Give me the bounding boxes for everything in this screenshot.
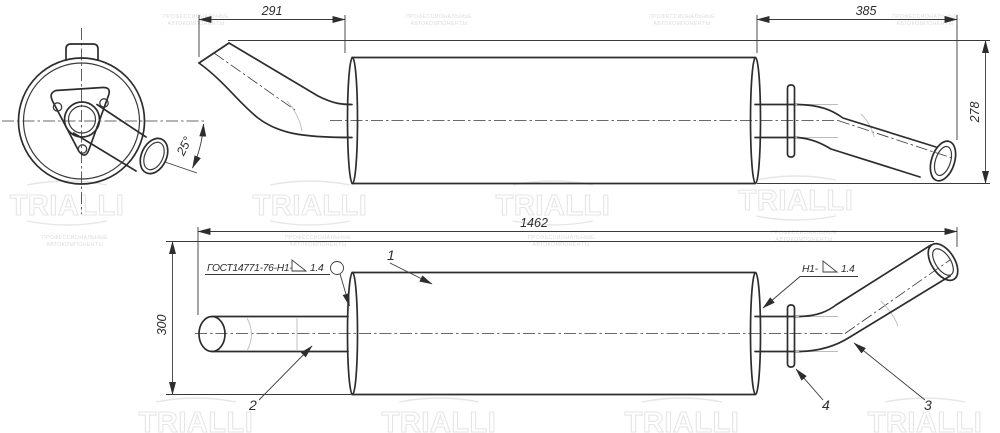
weld-size-text: 1.4 <box>841 264 855 275</box>
watermark-logo: TRIALLI <box>139 398 254 433</box>
svg-text:TRIALLI: TRIALLI <box>10 190 125 222</box>
part-label-muffler-body: 1 <box>387 247 395 263</box>
top-view-inlet-centerline <box>214 53 295 110</box>
part-label-bracket: 4 <box>822 397 830 413</box>
watermark-logo: TRIALLI ПРОФЕССИОНАЛЬНЫЕ АВТОКОМПОНЕНТЫ <box>10 181 125 248</box>
part-label-4: 4 <box>796 369 830 413</box>
dim-278-label: 278 <box>968 102 982 124</box>
svg-text:ПРОФЕССИОНАЛЬНЫЕ: ПРОФЕССИОНАЛЬНЫЕ <box>649 14 715 20</box>
weld-standard-text: ГОСТ14771-76-Н1- <box>207 263 293 274</box>
inlet-pipe-collar-outer <box>65 102 100 137</box>
weld-leader-circle <box>331 262 344 275</box>
dim-1462-label: 1462 <box>520 216 548 230</box>
svg-text:TRIALLI: TRIALLI <box>496 190 611 222</box>
part-label-inlet-pipe: 2 <box>248 397 257 413</box>
svg-text:ПРОФЕССИОНАЛЬНЫЕ: ПРОФЕССИОНАЛЬНЫЕ <box>528 235 594 241</box>
part-label-2: 2 <box>248 346 312 413</box>
watermark-logo: TRIALLI <box>382 398 497 433</box>
watermark-layer: ПРОФЕССИОНАЛЬНЫЕ АВТОКОМПОНЕНТЫ ПРОФЕССИ… <box>10 14 983 433</box>
inlet-pipe-end-inner <box>140 139 169 173</box>
svg-text:ПРОФЕССИОНАЛЬНЫЕ: ПРОФЕССИОНАЛЬНЫЕ <box>42 235 108 241</box>
watermark-logo: TRIALLI <box>625 398 740 433</box>
dim-385-label: 385 <box>856 4 877 18</box>
part-label-outlet-pipe: 3 <box>924 397 932 413</box>
svg-text:АВТОКОМПОНЕНТЫ: АВТОКОМПОНЕНТЫ <box>290 242 347 248</box>
watermark-logo: TRIALLI ПРОФЕССИОНАЛЬНЫЕ АВТОКОМПОНЕНТЫ <box>253 181 368 248</box>
svg-text:TRIALLI: TRIALLI <box>253 190 368 222</box>
svg-text:АВТОКОМПОНЕНТЫ: АВТОКОМПОНЕНТЫ <box>47 242 104 248</box>
svg-text:АВТОКОМПОНЕНТЫ: АВТОКОМПОНЕНТЫ <box>533 242 590 248</box>
flange-bolt-hole <box>78 145 86 153</box>
inlet-pipe-open-end <box>199 317 225 352</box>
watermark-logo: TRIALLI ПРОФЕССИОНАЛЬНЫЕ АВТОКОМПОНЕНТЫ <box>739 176 854 243</box>
muffler-body-top-view <box>348 58 761 184</box>
angle-25-label: 25° <box>173 135 195 159</box>
outlet-tip-outer <box>922 239 964 286</box>
svg-text:АВТОКОМПОНЕНТЫ: АВТОКОМПОНЕНТЫ <box>411 21 468 27</box>
fillet-weld-symbol <box>823 261 837 272</box>
outlet-tip-inner <box>931 144 955 177</box>
watermark-tagline-line2: АВТОКОМПОНЕНТЫ <box>168 21 225 27</box>
outlet-pipe-top-view <box>755 105 960 185</box>
inlet-pipe-collar-inner <box>69 106 96 133</box>
svg-text:TRIALLI: TRIALLI <box>382 407 497 433</box>
svg-text:ПРОФЕССИОНАЛЬНЫЕ: ПРОФЕССИОНАЛЬНЫЕ <box>285 235 351 241</box>
muffler-drawing-svg: ПРОФЕССИОНАЛЬНЫЕ АВТОКОМПОНЕНТЫ ПРОФЕССИ… <box>0 0 1000 433</box>
svg-text:TRIALLI: TRIALLI <box>139 407 254 433</box>
svg-text:АВТОКОМПОНЕНТЫ: АВТОКОМПОНЕНТЫ <box>776 237 833 243</box>
dim-angle-25: 25° <box>165 124 204 173</box>
fillet-weld-symbol <box>292 260 306 271</box>
dim-291-label: 291 <box>261 4 283 18</box>
part-label-1: 1 <box>387 247 432 284</box>
weld-callout-left: ГОСТ14771-76-Н1- 1.4 <box>205 260 350 306</box>
hanger-bracket-bottom-view <box>788 305 795 367</box>
outlet-tip-inner <box>929 245 958 278</box>
inlet-pipe-lower-edge <box>74 133 137 171</box>
side-view-top: 291 385 278 <box>199 4 990 184</box>
inlet-pipe-bottom-view <box>199 317 348 352</box>
watermark-logo: TRIALLI ПРОФЕССИОНАЛЬНЫЕ АВТОКОМПОНЕНТЫ <box>496 181 611 248</box>
svg-text:ПРОФЕССИОНАЛЬНЫЕ: ПРОФЕССИОНАЛЬНЫЕ <box>406 14 472 20</box>
svg-text:АВТОКОМПОНЕНТЫ: АВТОКОМПОНЕНТЫ <box>897 21 954 27</box>
technical-drawing-page: ПРОФЕССИОНАЛЬНЫЕ АВТОКОМПОНЕНТЫ ПРОФЕССИ… <box>0 0 1000 433</box>
svg-text:ПРОФЕССИОНАЛЬНЫЕ: ПРОФЕССИОНАЛЬНЫЕ <box>771 230 837 236</box>
dim-278: 278 <box>228 41 990 184</box>
weld-size-text: 1.4 <box>310 263 324 274</box>
dim-300-label: 300 <box>155 315 169 336</box>
inlet-pipe-top-view <box>199 43 352 138</box>
svg-text:АВТОКОМПОНЕНТЫ: АВТОКОМПОНЕНТЫ <box>654 21 711 27</box>
svg-text:TRIALLI: TRIALLI <box>739 185 854 217</box>
svg-text:TRIALLI: TRIALLI <box>625 407 740 433</box>
weld-prefix-text: Н1- <box>802 264 819 275</box>
end-view: 25° <box>2 28 206 214</box>
outlet-pipe-bottom-view <box>755 239 964 352</box>
part-label-3: 3 <box>854 343 932 413</box>
hanger-bracket-top-view <box>788 85 795 157</box>
